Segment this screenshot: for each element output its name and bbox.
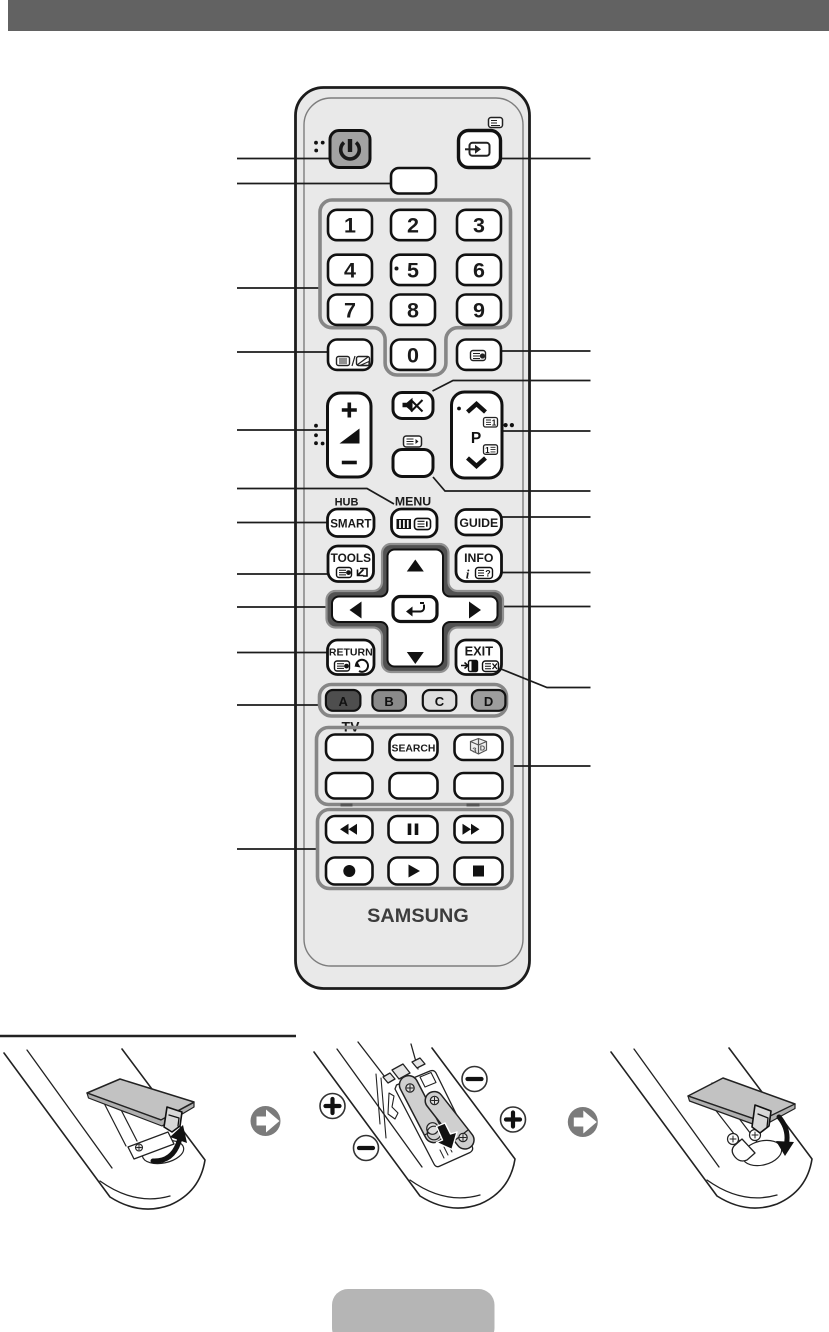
svg-text:5: 5 [407,259,419,283]
svg-text:1: 1 [344,214,356,238]
svg-text:A: A [339,694,349,709]
svg-text:INFO: INFO [464,551,494,565]
svg-text:3: 3 [473,214,485,238]
svg-text:9: 9 [473,298,485,322]
svg-text:0: 0 [407,343,419,367]
svg-text:4: 4 [344,259,356,283]
svg-text:i: i [466,567,470,582]
svg-text:RETURN: RETURN [329,647,373,659]
svg-text:C: C [435,694,445,709]
svg-text:D: D [480,744,486,753]
svg-text:3: 3 [472,746,476,755]
svg-text:D: D [484,694,493,709]
svg-text:GUIDE: GUIDE [459,516,498,530]
svg-text:2: 2 [407,214,419,238]
svg-text:8: 8 [407,298,419,322]
svg-text:?: ? [485,569,491,579]
svg-text:SMART: SMART [330,518,371,531]
svg-text:7: 7 [344,298,356,322]
svg-text:P: P [471,430,481,447]
svg-text:MENU: MENU [395,495,431,509]
svg-text:HUB: HUB [335,497,359,509]
svg-text:1: 1 [492,419,497,428]
svg-text:SAMSUNG: SAMSUNG [367,905,469,927]
svg-text:SEARCH: SEARCH [392,744,436,755]
svg-text:TOOLS: TOOLS [331,551,372,565]
svg-text:1: 1 [485,446,490,455]
svg-text:6: 6 [473,259,485,283]
svg-text:B: B [384,694,393,709]
svg-text:EXIT: EXIT [465,644,494,659]
